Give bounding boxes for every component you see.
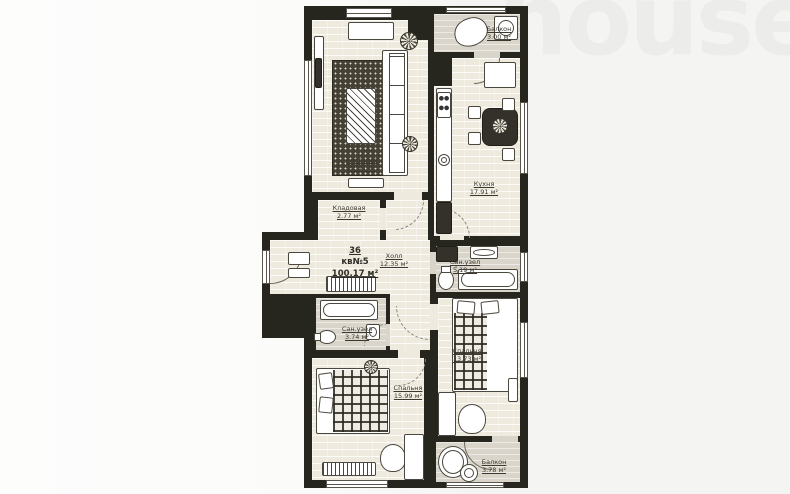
window <box>304 60 312 176</box>
room-label-kitchen: Кухня17.91 м² <box>454 180 514 197</box>
room-label-bathroom-main: Сан.узел5.19 м² <box>445 258 485 275</box>
door-opening-living <box>394 192 422 200</box>
kitchen-cabinet-icon <box>436 202 452 234</box>
room-label-living: Гостиная21.71 м² <box>332 156 392 173</box>
shoe-cabinet-icon <box>288 252 310 265</box>
house-kg-watermark: house.kg <box>498 0 790 78</box>
window <box>326 480 388 488</box>
chair-icon <box>502 148 515 161</box>
room-label-balcony-top: Балкон3.00 м² <box>479 25 519 42</box>
bench-icon <box>348 178 384 188</box>
window <box>520 322 528 378</box>
room-label-bedroom-small: Спальня13.73 м² <box>447 347 487 364</box>
window <box>520 252 528 282</box>
door-opening-storage <box>380 208 386 230</box>
door-opening-balcony-top <box>474 52 500 58</box>
fridge-icon <box>484 62 516 88</box>
plant-icon <box>402 136 418 152</box>
armchair-icon <box>380 444 406 472</box>
table-plant-icon <box>492 118 508 134</box>
dresser-icon <box>508 378 518 402</box>
shoe-cabinet-icon <box>288 268 310 278</box>
bathtub-icon <box>320 300 378 320</box>
console-table-icon <box>348 22 394 40</box>
chair-icon <box>468 106 481 119</box>
desk-icon <box>438 392 456 436</box>
wall <box>434 58 452 86</box>
chair-icon <box>468 132 481 145</box>
window <box>446 7 506 13</box>
room-label-balcony-bottom: Балкон3.78 м² <box>474 458 514 475</box>
window <box>346 8 392 18</box>
coffee-table-icon <box>346 88 376 144</box>
wardrobe-icon <box>322 462 376 476</box>
door-opening-bedroom-large <box>398 350 420 358</box>
armchair-icon <box>458 404 486 434</box>
window <box>446 482 504 488</box>
floorplan-image: house.kg <box>0 0 790 494</box>
room-label-storage: Кладовая2.77 м² <box>319 204 379 221</box>
room-label-bedroom-large: Спальня15.99 м² <box>388 384 428 401</box>
unit-info-label: 36 кв№5 100.17 м² <box>324 246 386 280</box>
window <box>520 102 528 174</box>
door-opening-bathroom-small <box>386 324 390 346</box>
plant-icon <box>400 32 418 50</box>
tv-icon <box>315 58 322 88</box>
door-opening-bedroom-small <box>430 304 438 330</box>
plant-icon <box>364 360 378 374</box>
bed-icon <box>316 368 390 434</box>
room-label-bathroom-small: Сан.узел3.74 м² <box>337 325 377 342</box>
desk-icon <box>404 434 424 480</box>
stove-icon <box>437 92 451 118</box>
apartment-floorplan: Гостиная21.71 м² Кухня17.91 м² Балкон3.0… <box>262 6 528 488</box>
chair-icon <box>502 98 515 111</box>
kitchen-sink-icon <box>438 154 450 166</box>
door-opening-balcony-bottom <box>492 436 518 442</box>
toilet-icon <box>318 330 336 344</box>
entry-door-opening <box>262 250 270 284</box>
